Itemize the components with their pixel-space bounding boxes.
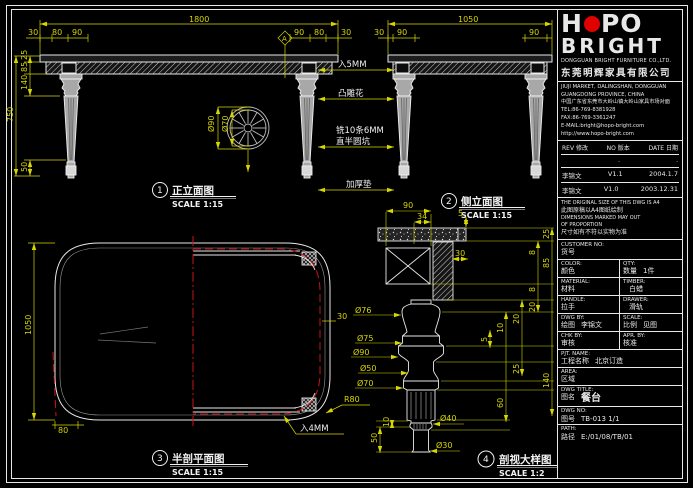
address-line: TEL:86-769-8381928 (561, 107, 679, 115)
dim-label: 8 (528, 250, 537, 255)
dim-label: 20 (528, 302, 537, 312)
dim-label: 85 (542, 258, 551, 268)
field-label-cn: 工程名称 (561, 357, 589, 365)
view-scale: SCALE 1:15 (172, 200, 224, 209)
dim-label: 60 (496, 398, 505, 408)
rev-version: . (618, 157, 620, 165)
field-value: TB-013 1/1 (581, 415, 619, 423)
dim-label: 90 (529, 28, 539, 37)
rev-date: . (676, 157, 678, 165)
callout-label: 入4MM (300, 424, 329, 434)
drawer-field: DRAWER: 滑轨 (620, 296, 682, 314)
view-scale: SCALE 1:15 (461, 211, 513, 220)
field-value: 白蜡 (629, 285, 643, 293)
side-view-title: 2 侧立面图 SCALE 1:15 (442, 194, 526, 221)
rev-version: V1.0 (604, 185, 619, 195)
dim-label: Ø90 (206, 116, 216, 132)
dim-label: Ø75 (357, 333, 373, 343)
company-logo-section: HPO BRIGHT DONGGUAN BRIGHT FURNITURE CO.… (558, 10, 682, 82)
color-field: COLOR: 颜色 (558, 260, 620, 278)
field-label-en: AREA: (561, 369, 679, 376)
chk-by-field: CHK BY: 审核 (558, 332, 620, 350)
side-elevation-view: 1050 30 90 90 2 侧立面图 SCALE 1:15 (374, 15, 552, 220)
rev-col-header: REV 修改 (562, 143, 588, 152)
dwg-by-field: DWG BY: 绘图李锦文 (558, 314, 620, 332)
address-line: E-MAIL:bright@hopo-bright.com (561, 123, 679, 131)
field-label-cn: 数量 (623, 267, 637, 275)
dim-label: 50 (370, 433, 379, 443)
path-field: PATH: 路径E:/01/08/TB/01 (558, 425, 682, 478)
company-name-en: DONGGUAN BRIGHT FURNITURE CO.,LTD. (561, 58, 679, 64)
field-label-cn: 颜色 (561, 267, 575, 275)
plan-dimension-labels: 1050 80 30 R80 入4MM (24, 312, 360, 435)
note-line: 尺寸如有不符以实物为准 (561, 229, 679, 237)
note-line: 此图原稿以A4图纸绘制 (561, 207, 679, 215)
address-line: 中国广东省东莞市大岭山镇大岭山家具市场对面 (561, 99, 679, 107)
view-number: 4 (483, 455, 489, 465)
front-dimension-labels: 1800 30 80 90 90 80 30 25 85 140 750 50 … (6, 15, 351, 172)
dim-label: Ø50 (360, 363, 376, 373)
dim-label: 140 (20, 75, 29, 90)
plan-dimension-lines (28, 243, 370, 434)
view-scale: SCALE 1:2 (499, 469, 545, 478)
field-label-cn: 材料 (561, 285, 575, 293)
dim-label: 20 (512, 314, 521, 324)
field-value: 餐台 (581, 393, 601, 405)
dim-label: 8 (528, 287, 537, 292)
dim-label: 30 (374, 28, 384, 37)
view-number: 2 (446, 197, 452, 207)
dim-label: 10 (496, 323, 505, 333)
view-scale: SCALE 1:15 (172, 468, 224, 477)
qty-field: QTY: 数量1件 (620, 260, 682, 278)
rev-version: V1.1 (608, 170, 623, 180)
field-value: E:/01/08/TB/01 (581, 433, 633, 441)
revision-table: REV 修改 NO 版本 DATE 日期 . . 李锦文 V1.1 2004.1… (558, 141, 682, 198)
dim-label: Ø70 (220, 116, 230, 132)
view-number: 3 (157, 454, 163, 464)
dim-label: 25 (20, 50, 29, 60)
dim-label: Ø30 (436, 440, 452, 450)
company-name-cn: 东莞明辉家具有限公司 (561, 65, 679, 79)
field-label-en: DWG TITLE: (561, 387, 679, 394)
customer-no-field: CUSTOMER NO: 货号 (558, 240, 682, 260)
dim-label: 80 (52, 28, 62, 37)
dim-label: 5 (458, 209, 463, 218)
field-label-en: DWG NO: (561, 408, 679, 415)
field-label-cn: 比例 (623, 321, 637, 329)
view-title: 剖视大样图 (499, 453, 552, 466)
rev-name: 李锦文 (562, 185, 582, 195)
side-dimension-labels: 1050 30 90 90 (374, 15, 539, 37)
wheel-carving-ornament (227, 107, 269, 149)
dim-label: 30 (341, 28, 351, 37)
dim-label: 85 (20, 62, 29, 72)
field-label-cn: 图号 (561, 415, 575, 423)
drawing-sheet: 1800 30 80 90 90 80 30 25 85 140 750 50 … (0, 0, 693, 488)
dim-label: 30 (337, 312, 347, 321)
field-label-en: CUSTOMER NO: (561, 242, 679, 249)
address-line: FAX:86-769-3361247 (561, 115, 679, 123)
view-title: 半剖平面图 (172, 452, 225, 465)
rev-date: 2004.1.7 (649, 170, 678, 180)
field-label-cn: 核准 (623, 339, 637, 347)
no-col-header: NO 版本 (607, 143, 630, 152)
logo-red-dot-icon (584, 16, 600, 32)
dim-label: Ø70 (357, 378, 373, 388)
dim-label: Ø40 (440, 413, 456, 423)
field-value: 1件 (643, 267, 654, 275)
callout-label: 直半圆坑 (336, 136, 371, 147)
drawing-notes: THE ORIGINAL SIZE OF THIS DWG IS A4 此图原稿… (558, 198, 682, 239)
side-table-geometry (388, 55, 552, 178)
detail-view-title: 4 剖视大样图 SCALE 1:2 (478, 451, 557, 478)
dim-label: Ø76 (355, 305, 371, 315)
front-elevation-view: 1800 30 80 90 90 80 30 25 85 140 750 50 … (6, 15, 352, 209)
timber-field: TIMBER: 白蜡 (620, 278, 682, 296)
field-label-cn: 图名 (561, 393, 575, 405)
dwg-title-field: DWG TITLE: 图名餐台 (558, 386, 682, 408)
rev-name: 李锦文 (562, 170, 582, 180)
plan-view-title: 3 半剖平面图 SCALE 1:15 (153, 451, 249, 478)
area-field: AREA: 区域 (558, 368, 682, 386)
dim-label: 34 (417, 212, 427, 221)
dim-label: 1050 (458, 15, 478, 24)
field-label-cn: 货号 (561, 248, 575, 256)
front-view-title: 1 正立面图 SCALE 1:15 (153, 183, 237, 210)
callout-label: 铣10条6MM (336, 125, 384, 136)
dim-label: 5 (480, 337, 489, 342)
view-title: 侧立面图 (461, 195, 503, 208)
section-marker-label: A (282, 35, 287, 43)
callout-label: 入5MM (338, 60, 367, 70)
dim-label: 30 (28, 28, 38, 37)
project-name-field: PJT. NAME: 工程名称北京订造 (558, 350, 682, 368)
field-label-cn: 区域 (561, 375, 575, 383)
callout-label: 加厚垫 (346, 179, 372, 190)
field-label-en: PATH: (561, 426, 679, 433)
dim-label: 10 (382, 417, 391, 427)
note-line: OF PROPORTION (561, 222, 679, 229)
field-label-cn: 拉手 (561, 303, 575, 311)
field-label-cn: 绘图 (561, 321, 575, 329)
field-label-cn: 审核 (561, 339, 575, 347)
logo-hopo: HPO (561, 12, 679, 36)
field-value: 见图 (643, 321, 657, 329)
dim-label: R80 (344, 395, 360, 404)
company-address-section: JIUJI MARKET, DALINGSHAN, DONGGUAN GUANG… (558, 82, 682, 142)
dim-label: 750 (6, 107, 15, 122)
date-col-header: DATE 日期 (648, 143, 678, 152)
plan-section-structure (98, 251, 316, 412)
view-number: 1 (157, 186, 163, 196)
dim-label: 25 (512, 364, 521, 374)
dim-label: 25 (542, 229, 551, 239)
dim-label: Ø90 (353, 347, 369, 357)
dim-label: 1050 (24, 315, 33, 335)
front-table-geometry (40, 55, 338, 178)
plan-half-section-view: 1050 80 30 R80 入4MM 3 半剖平面图 SCALE 1:15 (24, 236, 370, 477)
handle-field: HANDLE: 拉手 (558, 296, 620, 314)
title-block: HPO BRIGHT DONGGUAN BRIGHT FURNITURE CO.… (557, 9, 683, 479)
address-line: http://www.hopo-bright.com (561, 131, 679, 139)
dim-label: 90 (72, 28, 82, 37)
logo-bright: BRIGHT (561, 36, 679, 56)
spec-grid: COLOR: 颜色 QTY: 数量1件 MATERIAL: 材料 TIMBER:… (558, 260, 682, 350)
revision-row: 李锦文 V1.0 2003.12.31 (561, 183, 679, 197)
field-value: 李锦文 (581, 321, 602, 329)
dim-label: 90 (294, 28, 304, 37)
dim-label: 80 (58, 426, 68, 435)
note-line: DIMENSIONS MARKED MAY OUT (561, 215, 679, 222)
revision-row: 李锦文 V1.1 2004.1.7 (561, 168, 679, 183)
dim-label: 90 (403, 201, 413, 210)
rev-date: 2003.12.31 (641, 185, 678, 195)
dwg-no-field: DWG NO: 图号TB-013 1/1 (558, 407, 682, 425)
plan-centerlines (53, 236, 320, 428)
revision-row: . . (561, 155, 679, 168)
dim-label: 50 (20, 162, 29, 172)
dim-label: 90 (397, 28, 407, 37)
view-title: 正立面图 (172, 184, 214, 197)
dim-label: 1800 (189, 15, 209, 24)
side-dimension-lines (378, 20, 552, 54)
material-field: MATERIAL: 材料 (558, 278, 620, 296)
field-label-cn: 路径 (561, 433, 575, 441)
section-detail-view: 90 34 5 30 Ø76 Ø75 Ø90 Ø50 Ø70 25 85 140… (351, 201, 557, 478)
dim-label: 80 (314, 28, 324, 37)
field-value: 滑轨 (629, 303, 643, 311)
field-value: 北京订造 (595, 357, 623, 365)
scale-field: SCALE: 比例见图 (620, 314, 682, 332)
apr-by-field: APR. BY: 核准 (620, 332, 682, 350)
dim-label: 30 (455, 249, 465, 258)
revision-header: REV 修改 NO 版本 DATE 日期 (561, 141, 679, 155)
dim-label: 140 (542, 373, 551, 388)
callout-annotations: 入5MM 凸雕花 铣10条6MM 直半圆坑 加厚垫 (318, 60, 394, 190)
callout-label: 凸雕花 (338, 88, 364, 99)
address-line: JIUJI MARKET, DALINGSHAN, DONGGUAN (561, 84, 679, 92)
